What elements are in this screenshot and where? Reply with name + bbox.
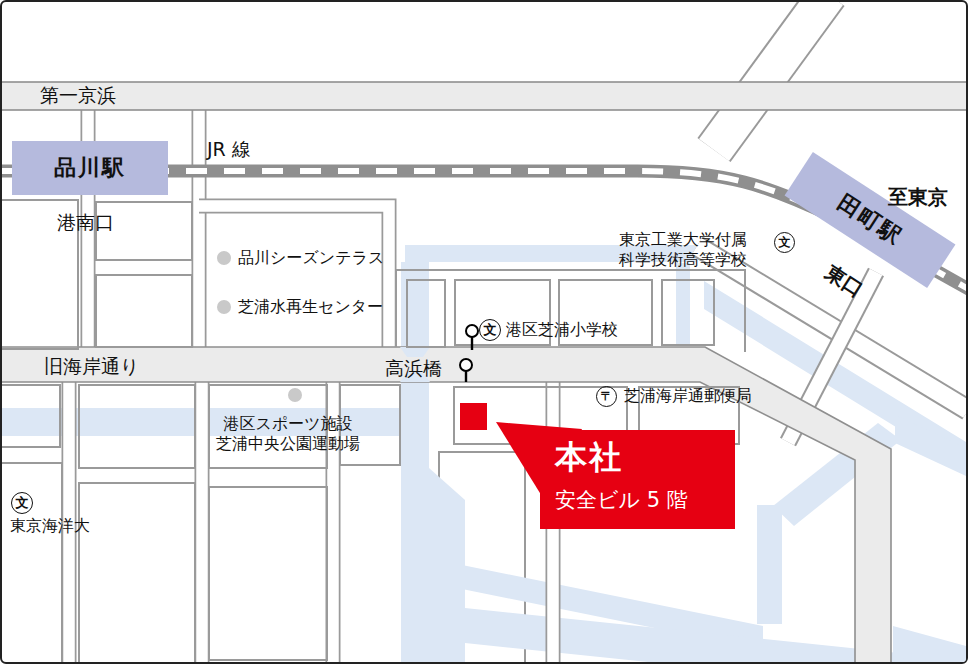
label-tech-high-school: 東京工業大学付属 科学技術高等学校 (619, 230, 747, 271)
label-marine-university: 東京海洋大 (10, 516, 90, 536)
post-office-icon: 〒 (596, 386, 617, 407)
canal-shapes (2, 245, 966, 662)
landmark-dot (217, 251, 231, 265)
label-takahama-bridge: 高浜橋 (385, 357, 442, 381)
school-icon: 文 (11, 492, 33, 514)
label-season-terrace: 品川シーズンテラス (238, 248, 384, 268)
label-elementary-school: 港区芝浦小学校 (506, 320, 618, 340)
label-daiichi-keihin: 第一京浜 (40, 84, 116, 108)
label-kyu-kaigan: 旧海岸通り (44, 355, 139, 379)
headquarters-title: 本社 (555, 436, 735, 480)
headquarters-subtitle: 安全ビル 5 階 (555, 486, 735, 514)
landmark-dot (217, 300, 231, 314)
label-jr-line: JR 線 (207, 138, 251, 162)
headquarters-callout: 本社 安全ビル 5 階 (540, 430, 735, 529)
route-map: 品川駅 田町駅 第一京浜 JR 線 港南口 品川シーズンテラス 芝浦水再生センタ… (0, 0, 968, 664)
station-label-shinagawa: 品川駅 (54, 153, 126, 183)
label-water-center: 芝浦水再生センター (238, 297, 383, 317)
school-icon: 文 (774, 232, 795, 253)
label-to-tokyo: 至東京 (888, 185, 948, 210)
label-konan-exit: 港南口 (57, 211, 114, 235)
label-sports-facility: 港区スポーツ施設 芝浦中央公園運動場 (216, 414, 360, 455)
station-box-shinagawa: 品川駅 (12, 141, 168, 195)
school-icon: 文 (479, 319, 501, 341)
landmark-dot (288, 388, 302, 402)
label-post-office: 芝浦海岸通郵便局 (624, 386, 752, 406)
daiichi-keihin-road (2, 82, 966, 110)
headquarters-marker (460, 403, 487, 430)
